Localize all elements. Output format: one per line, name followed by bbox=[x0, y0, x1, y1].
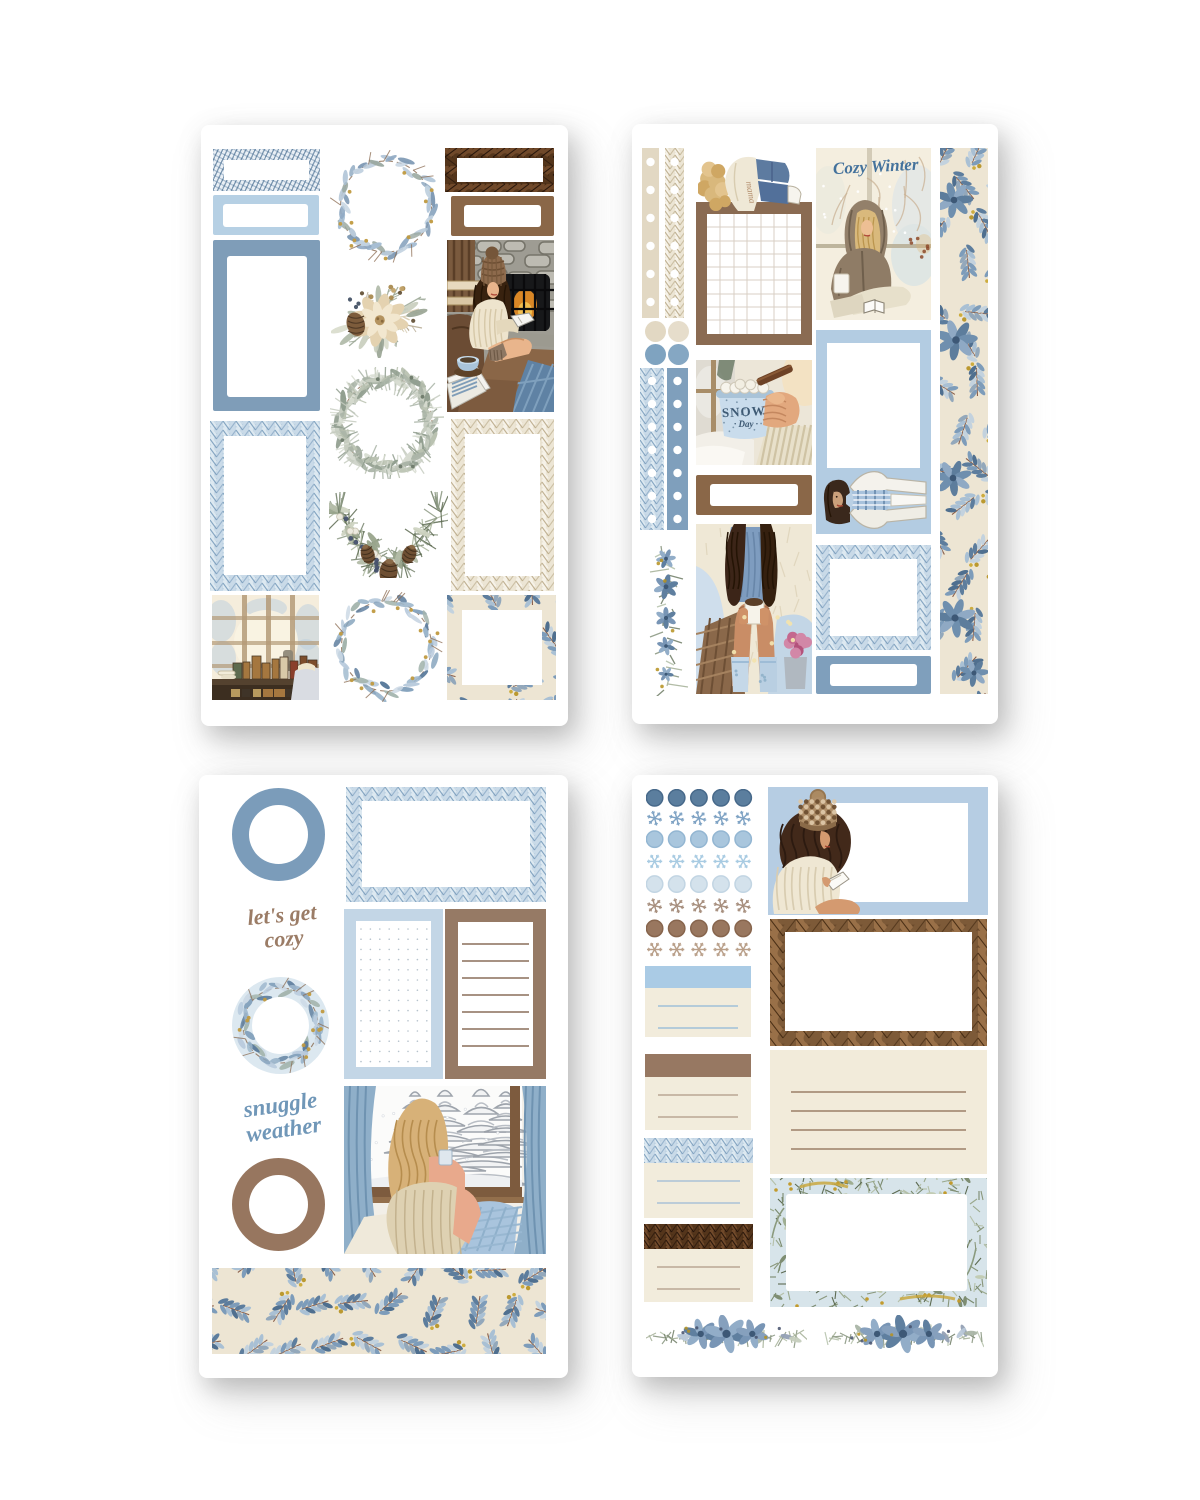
svg-text:SNOW: SNOW bbox=[722, 403, 766, 420]
svg-text:· Day ·: · Day · bbox=[734, 419, 758, 429]
